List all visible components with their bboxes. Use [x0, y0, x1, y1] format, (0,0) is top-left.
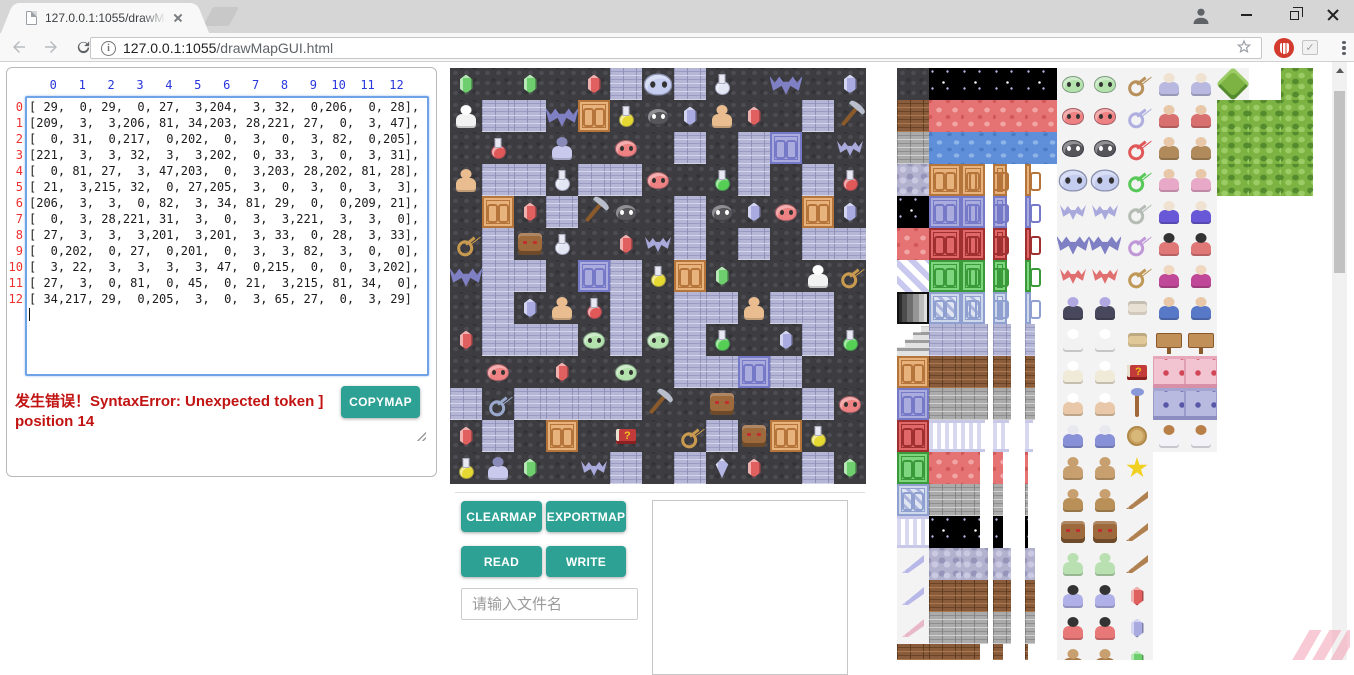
tileset-cell-person[interactable]	[1153, 260, 1185, 292]
tileset-cell-pinkw[interactable]	[1185, 356, 1217, 388]
back-button[interactable]	[6, 35, 32, 59]
tileset-cell-wing[interactable]	[1121, 516, 1153, 548]
tileset-cell-green[interactable]	[993, 260, 1025, 292]
tileset-cell-wing[interactable]	[897, 612, 929, 644]
map-tile-brick-wall[interactable]	[706, 292, 738, 324]
tileset-cell-bbrick[interactable]	[1025, 644, 1057, 660]
tileset-cell-lavw[interactable]	[1185, 388, 1217, 420]
page-scrollbar[interactable]	[1332, 62, 1347, 660]
tileset-cell-empty[interactable]	[1249, 196, 1281, 228]
tileset-cell-black[interactable]	[929, 516, 961, 548]
map-tile-yellow-potion[interactable]	[610, 100, 642, 132]
map-tile-dark-floor[interactable]	[770, 260, 802, 292]
tileset-cell-person[interactable]	[1089, 644, 1121, 660]
map-tile-big-bat[interactable]	[546, 100, 578, 132]
tileset-cell-bat[interactable]	[1057, 196, 1089, 228]
tileset-cell-bbrick[interactable]	[961, 356, 993, 388]
map-tile-dark-floor[interactable]	[642, 196, 674, 228]
tileset-cell-person[interactable]	[1185, 196, 1217, 228]
clearmap-button[interactable]: CLEARMAP	[461, 501, 542, 532]
map-tile-big-bat[interactable]	[770, 68, 802, 100]
map-tile-magic-book[interactable]	[610, 420, 642, 452]
tileset-cell-person[interactable]	[1185, 132, 1217, 164]
tileset-cell-empty[interactable]	[1217, 356, 1249, 388]
tileset-cell-person[interactable]	[1185, 228, 1217, 260]
tileset-cell-green[interactable]	[961, 260, 993, 292]
tileset-cell-scroll[interactable]	[1121, 292, 1153, 324]
map-tile-brick-wall[interactable]	[834, 228, 866, 260]
tileset-cell-wall[interactable]	[993, 324, 1025, 356]
tileset-cell-person[interactable]	[1057, 580, 1089, 612]
map-tile-dark-floor[interactable]	[834, 356, 866, 388]
forward-button[interactable]	[38, 35, 64, 59]
map-tile-brick-wall[interactable]	[770, 356, 802, 388]
tileset-cell-empty[interactable]	[1281, 580, 1313, 612]
window-minimize-button[interactable]	[1224, 0, 1269, 30]
tileset-cell-scroll[interactable]	[1121, 324, 1153, 356]
map-tile-green-gem[interactable]	[450, 68, 482, 100]
map-tile-brick-wall[interactable]	[482, 100, 514, 132]
tileset-cell-gstone[interactable]	[1025, 612, 1057, 644]
map-tile-dark-floor[interactable]	[546, 260, 578, 292]
tileset-cell-person[interactable]	[1185, 100, 1217, 132]
tileset-cell-water[interactable]	[993, 132, 1025, 164]
tileset-cell-gem[interactable]	[1121, 644, 1153, 660]
map-tile-brick-wall[interactable]	[482, 164, 514, 196]
tileset-cell-bbrick[interactable]	[961, 644, 993, 660]
map-tile-brick-wall[interactable]	[610, 388, 642, 420]
tileset-cell-empty[interactable]	[1217, 548, 1249, 580]
map-tile-dark-floor[interactable]	[546, 452, 578, 484]
map-tile-green-slime[interactable]	[610, 356, 642, 388]
tileset-cell-red[interactable]	[961, 100, 993, 132]
map-tile-blue-gem[interactable]	[770, 324, 802, 356]
map-tile-dark-floor[interactable]	[706, 228, 738, 260]
tileset-cell-gstone[interactable]	[993, 388, 1025, 420]
tileset-cell-lav[interactable]	[993, 196, 1025, 228]
map-tile-dark-floor[interactable]	[802, 132, 834, 164]
map-matrix-textarea[interactable]	[25, 96, 429, 376]
tileset-cell-empty[interactable]	[1217, 260, 1249, 292]
map-tile-dark-floor[interactable]	[674, 164, 706, 196]
map-tile-dark-floor[interactable]	[578, 228, 610, 260]
tileset-cell-gstone[interactable]	[961, 388, 993, 420]
tileset-cell-empty[interactable]	[1185, 580, 1217, 612]
map-tile-brick-wall[interactable]	[610, 324, 642, 356]
map-tile-brick-wall[interactable]	[578, 164, 610, 196]
tileset-cell-empty[interactable]	[1281, 548, 1313, 580]
browser-tab[interactable]: 127.0.0.1:1055/drawMa	[16, 3, 194, 33]
extension-check-icon[interactable]: ✓	[1302, 40, 1318, 55]
map-tile-black-slime[interactable]	[706, 196, 738, 228]
map-tile-dark-floor[interactable]	[706, 132, 738, 164]
map-tile-orange-door[interactable]	[546, 420, 578, 452]
map-tile-blue-gem[interactable]	[834, 196, 866, 228]
tileset-cell-tree[interactable]	[1249, 100, 1281, 132]
map-tile-green-gem[interactable]	[514, 68, 546, 100]
map-tile-brick-wall[interactable]	[578, 388, 610, 420]
map-tile-dark-floor[interactable]	[770, 228, 802, 260]
map-tile-dark-floor[interactable]	[450, 356, 482, 388]
map-tile-dark-floor[interactable]	[738, 68, 770, 100]
map-tile-brick-wall[interactable]	[610, 260, 642, 292]
map-tile-dark-floor[interactable]	[514, 420, 546, 452]
map-tile-red-slime[interactable]	[770, 196, 802, 228]
map-tile-brick-wall[interactable]	[802, 164, 834, 196]
filename-input[interactable]	[461, 588, 638, 620]
tileset-cell-empty[interactable]	[1281, 228, 1313, 260]
tileset-cell-key[interactable]	[1121, 68, 1153, 100]
map-tile-dark-floor[interactable]	[802, 68, 834, 100]
browser-menu-button[interactable]	[1337, 39, 1351, 57]
map-tile-orange-door[interactable]	[578, 100, 610, 132]
map-tile-brick-wall[interactable]	[610, 292, 642, 324]
tileset-cell-red[interactable]	[993, 452, 1025, 484]
map-tile-ghost[interactable]	[482, 452, 514, 484]
map-tile-green-gem[interactable]	[834, 452, 866, 484]
tileset-cell-empty[interactable]	[1153, 548, 1185, 580]
tileset-cell-key[interactable]	[1121, 100, 1153, 132]
map-tile-golem[interactable]	[450, 164, 482, 196]
tileset-cell-black[interactable]	[929, 68, 961, 100]
map-tile-red-gem[interactable]	[738, 100, 770, 132]
tileset-cell-gstone[interactable]	[961, 612, 993, 644]
tileset-cell-empty[interactable]	[1153, 516, 1185, 548]
tileset-cell-red[interactable]	[993, 100, 1025, 132]
copymap-button[interactable]: COPYMAP	[341, 386, 420, 418]
map-tile-dark-floor[interactable]	[770, 388, 802, 420]
tileset-cell-person[interactable]	[1057, 292, 1089, 324]
map-tile-dark-floor[interactable]	[642, 452, 674, 484]
tileset-cell-bat[interactable]	[1089, 228, 1121, 260]
map-tile-skeleton[interactable]	[450, 100, 482, 132]
tileset-cell-empty[interactable]	[1249, 324, 1281, 356]
tileset-cell-tree[interactable]	[1217, 132, 1249, 164]
tileset-cell-empty[interactable]	[1153, 644, 1185, 660]
tileset-cell-sign[interactable]	[1185, 324, 1217, 356]
tileset-cell-person[interactable]	[1185, 164, 1217, 196]
tileset-cell-empty[interactable]	[1217, 196, 1249, 228]
tileset-cell-red[interactable]	[1025, 100, 1057, 132]
tileset-cell-green[interactable]	[897, 452, 929, 484]
tileset-cell-slime[interactable]	[1057, 132, 1089, 164]
tileset-cell-black[interactable]	[993, 516, 1025, 548]
tileset-cell-person[interactable]	[1153, 228, 1185, 260]
tileset-cell-empty[interactable]	[1281, 292, 1313, 324]
tileset-cell-bbrick[interactable]	[929, 580, 961, 612]
map-tile-red-slime[interactable]	[642, 164, 674, 196]
map-tile-silver-potion[interactable]	[546, 228, 578, 260]
scrollbar-thumb[interactable]	[1334, 91, 1345, 273]
tileset-cell-slime[interactable]	[1089, 68, 1121, 100]
tileset-cell-empty[interactable]	[1185, 548, 1217, 580]
tileset-cell-fade[interactable]	[897, 292, 929, 324]
map-tile-dark-floor[interactable]	[738, 324, 770, 356]
tileset-cell-person[interactable]	[1153, 132, 1185, 164]
map-tile-brick-wall[interactable]	[674, 356, 706, 388]
tileset-cell-key[interactable]	[1121, 260, 1153, 292]
read-button[interactable]: READ	[461, 546, 542, 577]
map-tile-small-bat[interactable]	[834, 132, 866, 164]
map-tile-blue-key[interactable]	[482, 388, 514, 420]
tileset-cell-gstone[interactable]	[929, 484, 961, 516]
map-tile-red-slime[interactable]	[482, 356, 514, 388]
map-tile-brick-wall[interactable]	[514, 164, 546, 196]
map-tile-orange-door[interactable]	[674, 260, 706, 292]
map-tile-red-gem[interactable]	[738, 452, 770, 484]
tileset-cell-bbrick[interactable]	[897, 644, 929, 660]
new-tab-button[interactable]	[203, 7, 239, 26]
page-info-icon[interactable]: i	[101, 41, 116, 56]
tileset-cell-empty[interactable]	[1249, 644, 1281, 660]
tileset-cell-person[interactable]	[1153, 164, 1185, 196]
tileset-cell-black[interactable]	[1025, 68, 1057, 100]
tileset-cell-person[interactable]	[1057, 452, 1089, 484]
tileset-cell-slime[interactable]	[1089, 132, 1121, 164]
textarea-resize-grip[interactable]	[415, 430, 426, 441]
tileset-cell-red[interactable]	[961, 452, 993, 484]
tileset-cell-green[interactable]	[929, 260, 961, 292]
tileset-cell-empty[interactable]	[1249, 484, 1281, 516]
exportmap-button[interactable]: EXPORTMAP	[546, 501, 626, 532]
tileset-cell-empty[interactable]	[1249, 548, 1281, 580]
map-tile-brick-wall[interactable]	[738, 164, 770, 196]
tileset-cell-person[interactable]	[1089, 292, 1121, 324]
map-tile-yellow-key[interactable]	[674, 420, 706, 452]
tileset-cell-red[interactable]	[897, 228, 929, 260]
tileset-cell-person[interactable]	[1153, 292, 1185, 324]
map-tile-brick-wall[interactable]	[610, 452, 642, 484]
tileset-cell-bbrick[interactable]	[929, 644, 961, 660]
tileset-cell-slime[interactable]	[1057, 68, 1089, 100]
map-tile-brick-wall[interactable]	[674, 324, 706, 356]
tileset-cell-red[interactable]	[961, 228, 993, 260]
map-tile-blue-gem[interactable]	[514, 292, 546, 324]
tileset-cell-person[interactable]	[1057, 612, 1089, 644]
tileset-cell-empty[interactable]	[1153, 580, 1185, 612]
tileset-cell-red[interactable]	[897, 420, 929, 452]
tileset-cell-person[interactable]	[1089, 388, 1121, 420]
tileset-cell-bbrick[interactable]	[961, 580, 993, 612]
tileset-cell-empty[interactable]	[1217, 324, 1249, 356]
tileset-cell-empty[interactable]	[1249, 356, 1281, 388]
map-tile-dark-floor[interactable]	[642, 356, 674, 388]
tileset-cell-lavcob[interactable]	[993, 548, 1025, 580]
map-tile-silver-potion[interactable]	[546, 164, 578, 196]
extension-hand-icon[interactable]	[1274, 38, 1294, 58]
tileset-cell-diag[interactable]	[897, 260, 929, 292]
map-tile-green-slime[interactable]	[642, 324, 674, 356]
map-tile-silver-potion[interactable]	[706, 68, 738, 100]
tileset-cell-bbrick[interactable]	[993, 580, 1025, 612]
map-tile-red-gem[interactable]	[514, 196, 546, 228]
map-tile-red-gem[interactable]	[450, 324, 482, 356]
tileset-cell-black[interactable]	[993, 68, 1025, 100]
tileset-cell-lav[interactable]	[961, 196, 993, 228]
map-tile-dark-floor[interactable]	[578, 132, 610, 164]
tileset-cell-person[interactable]	[1185, 292, 1217, 324]
tileset-cell-lat[interactable]	[961, 292, 993, 324]
tileset-cell-empty[interactable]	[1185, 484, 1217, 516]
tileset-cell-lav[interactable]	[1025, 196, 1057, 228]
map-tile-brick-wall[interactable]	[674, 132, 706, 164]
map-tile-orange-door[interactable]	[770, 420, 802, 452]
tileset-cell-slime[interactable]	[1089, 164, 1121, 196]
map-tile-yellow-potion[interactable]	[642, 260, 674, 292]
tileset-cell-empty[interactable]	[1249, 420, 1281, 452]
tileset-cell-person[interactable]	[1089, 580, 1121, 612]
tileset-cell-person[interactable]	[1185, 68, 1217, 100]
map-tile-dark-floor[interactable]	[738, 388, 770, 420]
map-tile-brick-wall[interactable]	[770, 292, 802, 324]
map-tile-brick-wall[interactable]	[738, 228, 770, 260]
tileset-cell-bbrick[interactable]	[929, 356, 961, 388]
tileset-cell-person[interactable]	[1089, 324, 1121, 356]
map-tile-brick-wall[interactable]	[802, 388, 834, 420]
map-tile-brick-wall[interactable]	[514, 388, 546, 420]
map-tile-brick-wall[interactable]	[482, 420, 514, 452]
tileset-cell-wing[interactable]	[1121, 548, 1153, 580]
map-tile-brick-wall[interactable]	[674, 292, 706, 324]
map-tile-brick-wall[interactable]	[514, 260, 546, 292]
tileset-cell-bbrick[interactable]	[993, 356, 1025, 388]
tileset-cell-floor[interactable]	[897, 68, 929, 100]
tileset-cell-pillar[interactable]	[929, 420, 961, 452]
map-tile-spinner-item[interactable]	[706, 452, 738, 484]
tileset-cell-slime[interactable]	[1089, 100, 1121, 132]
map-tile-brick-wall[interactable]	[706, 420, 738, 452]
bookmark-star-icon[interactable]	[1235, 38, 1255, 58]
tileset-cell-bat[interactable]	[1089, 196, 1121, 228]
tileset-cell-pillar[interactable]	[897, 516, 929, 548]
tab-close-icon[interactable]	[170, 10, 186, 26]
map-tile-brick-wall[interactable]	[674, 452, 706, 484]
map-tile-small-bat[interactable]	[578, 452, 610, 484]
tileset-cell-person[interactable]	[1089, 484, 1121, 516]
tileset-cell-water[interactable]	[1025, 132, 1057, 164]
tileset-cell-empty[interactable]	[1249, 388, 1281, 420]
map-tile-brick-wall[interactable]	[546, 324, 578, 356]
map-tile-green-potion[interactable]	[706, 164, 738, 196]
tileset-cell-wall[interactable]	[1025, 324, 1057, 356]
map-tile-blue-gem[interactable]	[674, 100, 706, 132]
tileset-cell-pillar[interactable]	[993, 420, 1025, 452]
map-tile-brick-wall[interactable]	[482, 260, 514, 292]
map-tile-red-potion[interactable]	[482, 132, 514, 164]
tileset-cell-lavcob[interactable]	[961, 548, 993, 580]
map-tile-dark-floor[interactable]	[450, 196, 482, 228]
map-tile-brick-wall[interactable]	[546, 388, 578, 420]
map-tile-stone-statue[interactable]	[514, 228, 546, 260]
tileset-cell-bat[interactable]	[1089, 260, 1121, 292]
tileset-cell-gstone[interactable]	[1025, 388, 1057, 420]
tileset-cell-gstone[interactable]	[993, 484, 1025, 516]
map-tile-brick-wall[interactable]	[610, 164, 642, 196]
tileset-cell-lat[interactable]	[1025, 292, 1057, 324]
map-tile-blue-door[interactable]	[578, 260, 610, 292]
tileset-cell-black[interactable]	[961, 516, 993, 548]
tileset-cell-book[interactable]	[1121, 356, 1153, 388]
tileset-cell-empty[interactable]	[1281, 388, 1313, 420]
map-tile-orange-door[interactable]	[802, 196, 834, 228]
tileset-cell-lav[interactable]	[897, 388, 929, 420]
map-tile-black-slime[interactable]	[610, 196, 642, 228]
tileset-cell-person[interactable]	[1153, 196, 1185, 228]
map-tile-dark-floor[interactable]	[546, 68, 578, 100]
write-button[interactable]: WRITE	[546, 546, 626, 577]
tileset-cell-red[interactable]	[929, 100, 961, 132]
tileset-cell-tree[interactable]	[1281, 68, 1313, 100]
tileset-cell-stairs[interactable]	[897, 324, 929, 356]
map-tile-brick-wall[interactable]	[802, 452, 834, 484]
tileset-cell-lavcob[interactable]	[897, 164, 929, 196]
tileset-palette[interactable]	[897, 68, 1313, 660]
map-tile-brick-wall[interactable]	[450, 388, 482, 420]
tileset-cell-star[interactable]	[1121, 452, 1153, 484]
map-tile-dark-floor[interactable]	[770, 100, 802, 132]
tileset-cell-empty[interactable]	[1217, 420, 1249, 452]
map-tile-dark-floor[interactable]	[450, 132, 482, 164]
map-tile-pickaxe[interactable]	[578, 196, 610, 228]
map-tile-golem[interactable]	[546, 292, 578, 324]
tileset-cell-person[interactable]	[1057, 420, 1089, 452]
tileset-cell-gem[interactable]	[1121, 580, 1153, 612]
map-tile-brick-wall[interactable]	[706, 356, 738, 388]
tileset-cell-empty[interactable]	[1281, 484, 1313, 516]
tileset-cell-tan[interactable]	[1025, 164, 1057, 196]
map-tile-red-slime[interactable]	[834, 388, 866, 420]
tileset-cell-empty[interactable]	[1185, 516, 1217, 548]
scrollbar-up-arrow-icon[interactable]	[1332, 62, 1347, 78]
tileset-cell-empty[interactable]	[1281, 356, 1313, 388]
tileset-cell-empty[interactable]	[1153, 452, 1185, 484]
tileset-cell-water[interactable]	[929, 132, 961, 164]
tileset-cell-person[interactable]	[1089, 612, 1121, 644]
tileset-cell-empty[interactable]	[1217, 484, 1249, 516]
tileset-cell-empty[interactable]	[1249, 452, 1281, 484]
tileset-cell-wing[interactable]	[897, 548, 929, 580]
tileset-cell-person[interactable]	[1057, 548, 1089, 580]
tileset-cell-empty[interactable]	[1281, 452, 1313, 484]
map-tile-brick-wall[interactable]	[482, 228, 514, 260]
map-tile-brick-wall[interactable]	[674, 68, 706, 100]
tileset-cell-empty[interactable]	[1249, 580, 1281, 612]
profile-icon[interactable]	[1189, 4, 1213, 28]
map-tile-stone-statue[interactable]	[738, 420, 770, 452]
map-tile-dark-floor[interactable]	[642, 292, 674, 324]
tileset-cell-lavcob[interactable]	[929, 548, 961, 580]
url-text[interactable]: 127.0.0.1:1055/drawMapGUI.html	[123, 40, 1235, 56]
tileset-cell-empty[interactable]	[1249, 612, 1281, 644]
tileset-cell-lav[interactable]	[929, 196, 961, 228]
map-tile-golem[interactable]	[738, 292, 770, 324]
tileset-cell-empty[interactable]	[1217, 388, 1249, 420]
map-tile-yellow-key[interactable]	[834, 260, 866, 292]
tileset-cell-lavw[interactable]	[1153, 388, 1185, 420]
tileset-cell-red[interactable]	[929, 228, 961, 260]
map-tile-dark-floor[interactable]	[770, 164, 802, 196]
map-tile-red-gem[interactable]	[450, 420, 482, 452]
map-tile-golem[interactable]	[706, 100, 738, 132]
tileset-cell-empty[interactable]	[1249, 228, 1281, 260]
address-bar[interactable]: i 127.0.0.1:1055/drawMapGUI.html	[90, 37, 1262, 59]
map-tile-dark-floor[interactable]	[578, 356, 610, 388]
tileset-cell-bat[interactable]	[1057, 228, 1089, 260]
map-tile-orange-door[interactable]	[482, 196, 514, 228]
map-tile-green-potion[interactable]	[834, 324, 866, 356]
tileset-cell-face[interactable]	[1089, 516, 1121, 548]
tileset-cell-person[interactable]	[1185, 420, 1217, 452]
